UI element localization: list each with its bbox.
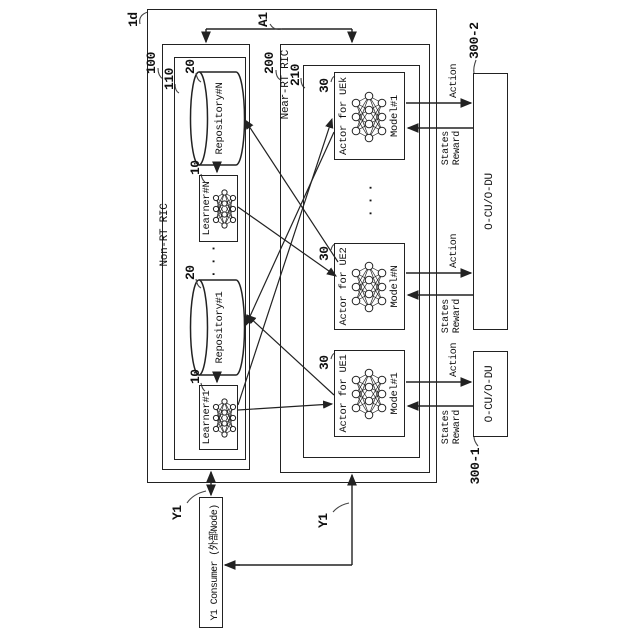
non-rt-ric-title: Non-RT RIC: [159, 180, 171, 290]
learnerN-title: Learner#N: [201, 175, 213, 242]
ref-1d: 1d: [126, 12, 141, 27]
ref-30-ue2: 30: [317, 246, 332, 261]
actor-ue1-title: Actor for UE1: [338, 350, 350, 437]
actor-ue2-title: Actor for UE2: [338, 243, 350, 330]
ref-20-repoN: 20: [183, 59, 198, 74]
reward-label-ue1: Reward: [452, 410, 463, 449]
ref-100: 100: [144, 52, 159, 74]
states-label-uek: States: [441, 131, 452, 170]
ref-300-2: 300-2: [467, 22, 482, 59]
action-label-uek: Action: [449, 64, 460, 98]
reward-label-uek: Reward: [452, 131, 463, 170]
learner1-title: Learner#1: [201, 385, 213, 450]
diagram-scene: 1d A1 100 110 200 210 10 10 20 20 30 30 …: [0, 0, 640, 640]
action-label-ue2: Action: [449, 234, 460, 268]
ref-a1: A1: [256, 12, 271, 27]
actor-ue2-model: Model#N: [389, 243, 401, 330]
ref-200: 200: [262, 52, 277, 74]
states-label-ue1: States: [441, 410, 452, 449]
actor-uek-title: Actor for UEk: [338, 72, 350, 160]
ref-10-learner1: 10: [188, 369, 203, 384]
y1-consumer-label: Y1 Consumer (外部Node): [205, 497, 221, 628]
actor-ellipsis: ···: [363, 174, 378, 222]
o-cu-o-du-label-2: O-CU/O-DU: [484, 73, 496, 330]
y1-link-near-rt: [225, 475, 352, 565]
learner-ellipsis: ···: [206, 244, 221, 278]
patent-figure: 1d A1 100 110 200 210 10 10 20 20 30 30 …: [0, 0, 640, 640]
ref-30-uek: 30: [317, 78, 332, 93]
ref-20-repo1: 20: [183, 265, 198, 280]
reward-label-ue2: Reward: [452, 299, 463, 338]
action-label-ue1: Action: [449, 343, 460, 377]
ref-y1-side: Y1: [316, 513, 331, 528]
states-label-ue2: States: [441, 299, 452, 338]
repository1-title: Repository#1: [214, 280, 226, 375]
ref-30-ue1: 30: [317, 355, 332, 370]
ref-300-1: 300-1: [468, 448, 483, 492]
ref-110: 110: [162, 68, 177, 90]
ref-y1-top: Y1: [170, 505, 185, 520]
ref-10-learnerN: 10: [188, 160, 203, 175]
repositoryN-title: Repository#N: [214, 72, 226, 165]
near-rt-ric-title: Near-RT RIC: [280, 50, 292, 135]
o-cu-o-du-label-1: O-CU/O-DU: [484, 351, 496, 437]
actor-ue1-model: Model#1: [389, 350, 401, 437]
actor-uek-model: Model#1: [389, 72, 401, 160]
